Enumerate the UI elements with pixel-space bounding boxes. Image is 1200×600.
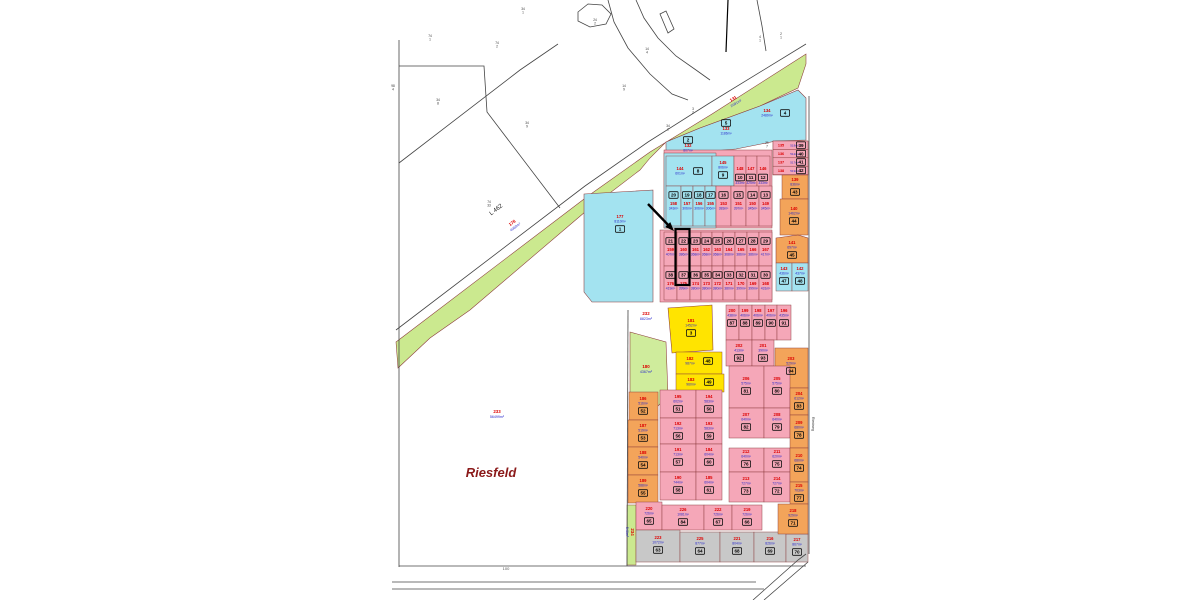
parcel-number: 147 <box>748 166 756 171</box>
lot-number: 63 <box>655 548 661 553</box>
lot-number: 3 <box>690 331 693 336</box>
parcel-number: 182 <box>687 356 695 361</box>
parcel-area: 640m² <box>772 418 782 422</box>
parcel-number: 169 <box>750 281 758 286</box>
parcel-number: 187 <box>640 423 648 428</box>
parcel-number: 156 <box>696 201 704 206</box>
parcel-area: 380m² <box>691 287 701 291</box>
parcel-area: 583m² <box>704 427 714 431</box>
parcel-area: 680m² <box>794 459 804 463</box>
parcel-number: 214 <box>774 476 782 481</box>
lot-number: 45 <box>789 253 795 258</box>
parcel-area: 1452m² <box>685 324 697 328</box>
parcel-number: 209 <box>796 420 804 425</box>
cadastral-label: 217 <box>765 141 769 148</box>
parcel-area: 540m² <box>625 527 629 538</box>
boundary-line <box>399 66 560 208</box>
lot-number: 50 <box>706 407 712 412</box>
lot-number: 69 <box>767 549 773 554</box>
lot-number: 35 <box>704 273 710 278</box>
parcel-number: 139 <box>792 177 800 182</box>
parcel-number: 201 <box>760 343 768 348</box>
parcel-area: 1081m² <box>677 513 689 517</box>
parcel-number: 176 <box>667 281 675 286</box>
parcel-area: 368m² <box>702 253 712 257</box>
parcel-area: 640m² <box>741 418 751 422</box>
cadastral-label: 348 <box>436 98 440 105</box>
lot-number: 13 <box>763 193 769 198</box>
street-name-label: Riedweg <box>811 417 815 431</box>
lot-number: 4 <box>784 111 787 116</box>
lot-number: 60 <box>706 460 712 465</box>
lot-number: 77 <box>796 496 802 501</box>
parcel-number: 137 <box>778 160 784 164</box>
parcel-number: 144 <box>677 166 685 171</box>
parcel-number: 160 <box>680 247 688 252</box>
parcel-number: 132 <box>685 143 693 148</box>
lot-number: 48 <box>797 279 803 284</box>
parcel-area: 519m² <box>638 429 648 433</box>
boundary-line <box>764 562 808 600</box>
lot-number: 67 <box>715 520 721 525</box>
lot-number: 87 <box>729 321 735 326</box>
lot-number: 55 <box>640 491 646 496</box>
parcel-area: 703m² <box>794 489 804 493</box>
parcel-number: 164 <box>726 247 734 252</box>
parcel-area: 726m² <box>713 513 723 517</box>
parcel-number: 195 <box>675 394 683 399</box>
lot-number: 28 <box>750 239 756 244</box>
lot-number: 21 <box>668 239 674 244</box>
parcel <box>676 374 724 392</box>
parcel-number: 153 <box>720 201 728 206</box>
parcel-area: 306m² <box>706 207 716 211</box>
parcel-number: 190 <box>675 475 683 480</box>
lot-number: 56 <box>675 434 681 439</box>
lot-number: 29 <box>763 239 769 244</box>
map-canvas: 1778110m²1144601m²8145806m²914810333m²14… <box>0 0 1200 600</box>
parcel <box>584 190 653 302</box>
lot-number: 64 <box>697 549 703 554</box>
parcel-area: 368m² <box>724 253 734 257</box>
lot-number: 42 <box>798 168 804 173</box>
parcel-area: 390m² <box>758 349 768 353</box>
lot-number: 78 <box>796 433 802 438</box>
cadastral-label: 7433 <box>487 200 491 207</box>
cadastral-label: 349 <box>525 121 529 128</box>
parcel-area: 306m² <box>694 207 704 211</box>
cadastral-label: 342 <box>666 124 670 131</box>
road-name-label: L 462 <box>489 203 505 217</box>
parcel <box>668 305 713 353</box>
lot-number: 84 <box>680 520 686 525</box>
lot-number: 12 <box>760 175 766 180</box>
lot-number: 37 <box>681 273 687 278</box>
parcel-number: 181 <box>688 318 696 323</box>
parcel-number: 162 <box>703 247 711 252</box>
lot-number: 52 <box>640 409 646 414</box>
lot-number: 57 <box>675 460 681 465</box>
parcel-area: 380m² <box>713 287 723 291</box>
parcel <box>666 156 712 186</box>
parcel-number: 180 <box>642 364 650 369</box>
lot-number: 90 <box>768 321 774 326</box>
parcel-number: 134 <box>764 108 772 113</box>
cadastral-label: 742 <box>495 41 499 48</box>
parcel-area: 333m² <box>758 181 768 185</box>
parcel-area: 399m² <box>748 287 758 291</box>
lot-number: 9 <box>722 173 725 178</box>
parcel-area: 697m² <box>787 246 797 250</box>
parcel-number: 191 <box>675 447 683 452</box>
cadastral-label: 32 <box>692 107 694 114</box>
parcel-area: 413m² <box>734 349 744 353</box>
lot-number: 44 <box>791 219 797 224</box>
parcel-area: 399m² <box>679 287 689 291</box>
parcel-area: 386m² <box>736 253 746 257</box>
lot-number: 11 <box>749 175 754 180</box>
parcel-area: 588m² <box>638 484 648 488</box>
parcel-area: 583m² <box>704 400 714 404</box>
lot-number: 15 <box>736 193 742 198</box>
parcel-number: 215 <box>796 483 804 488</box>
lot-number: 25 <box>715 239 721 244</box>
parcel-area: 713m² <box>673 453 683 457</box>
lot-number: 94 <box>788 369 794 374</box>
lot-number: 5 <box>725 121 728 126</box>
lot-number: 34 <box>715 273 721 278</box>
parcel-area: 640m² <box>741 455 751 459</box>
parcel <box>729 366 764 408</box>
street-label-group: Riedweg <box>811 417 815 431</box>
parcel-number: 170 <box>738 281 746 286</box>
boundary-line <box>757 0 766 51</box>
parcel-area: 368m² <box>691 253 701 257</box>
place-name-label: Riesfeld <box>466 465 518 480</box>
parcel-number: 185 <box>706 475 714 480</box>
parcel-number: 171 <box>726 281 734 286</box>
parcel-number: 210 <box>796 453 804 458</box>
parcel-number: 145 <box>720 160 728 165</box>
lot-number: 38 <box>668 273 674 278</box>
lot-number: 92 <box>736 356 742 361</box>
parcel-number: 133 <box>723 126 731 131</box>
parcel <box>780 199 808 235</box>
lot-number: 80 <box>774 389 780 394</box>
parcel-area: 386m² <box>679 253 689 257</box>
parcel-area: 417m² <box>761 253 771 257</box>
parcel-number: 234 <box>630 528 635 536</box>
lot-number: 26 <box>726 239 732 244</box>
lot-number: 89 <box>755 321 761 326</box>
lot-number: 19 <box>684 193 690 198</box>
lot-number: 14 <box>750 193 756 198</box>
boundary-line <box>399 44 558 163</box>
parcel-number: 135 <box>778 144 784 148</box>
parcel-number: 196 <box>781 308 789 313</box>
parcel-area: 806m² <box>718 166 728 170</box>
parcel-area: 604m² <box>704 453 714 457</box>
parcel-number: 159 <box>667 247 675 252</box>
lot-number: 24 <box>704 239 710 244</box>
parcel-area: 306m² <box>682 207 692 211</box>
rotated-label-group: 1784060m² <box>506 217 522 233</box>
lot-number: 16 <box>721 193 727 198</box>
parcel-area: 960m² <box>686 383 696 387</box>
parcel-number: 226 <box>680 507 688 512</box>
parcel-area: 435m² <box>779 314 789 318</box>
lot-number: 47 <box>781 279 787 284</box>
parcel-number: 149 <box>762 201 770 206</box>
cadastral-label: 242 <box>593 18 597 25</box>
parcel-area: 680m² <box>794 426 804 430</box>
lot-number: 18 <box>696 193 702 198</box>
parcel-area: 727m² <box>772 482 782 486</box>
cadastral-label: 41 <box>759 35 761 42</box>
parcel-area: 604m² <box>704 481 714 485</box>
parcel-number: 161 <box>692 247 700 252</box>
parcel-area: 325m² <box>746 181 756 185</box>
parcel-area: 826m² <box>765 542 775 546</box>
parcel-number: 177 <box>617 214 625 219</box>
parcel-area: 516m² <box>638 402 648 406</box>
parcel-number: 168 <box>762 281 770 286</box>
parcel-area: 929m² <box>788 514 798 518</box>
boundary-line <box>636 0 710 80</box>
cadastral-label: 21 <box>780 32 782 39</box>
lot-number: 71 <box>790 521 796 526</box>
lot-number: 73 <box>743 489 749 494</box>
lot-number: 10 <box>737 175 743 180</box>
parcel-area: 877m² <box>695 542 705 546</box>
lot-number: 68 <box>734 549 740 554</box>
lot-number: 91 <box>781 321 787 326</box>
parcel-number: 192 <box>675 421 683 426</box>
parcel-area: 726m² <box>644 512 654 516</box>
lot-number: 70 <box>794 550 800 555</box>
parcel-number: 194 <box>706 394 714 399</box>
parcel-number: 165 <box>738 247 746 252</box>
lot-number: 61 <box>706 488 712 493</box>
parcel-number: 184 <box>706 447 714 452</box>
parcel-number: 172 <box>714 281 722 286</box>
parcel-area: 1072m² <box>652 541 664 545</box>
parcel-number: 151 <box>735 201 743 206</box>
parcel-area: 383m² <box>719 207 729 211</box>
parcel-area: 397m² <box>734 207 744 211</box>
lot-number: 66 <box>744 520 750 525</box>
parcel-area: 620m² <box>772 455 782 459</box>
parcel-number: 208 <box>774 412 782 417</box>
parcel-area: 406m² <box>740 314 750 318</box>
lot-number: 40 <box>798 151 804 156</box>
parcel-area: 386m² <box>748 253 758 257</box>
parcel-area: 406m² <box>766 314 776 318</box>
lot-number: 58 <box>675 488 681 493</box>
parcel-number: 212 <box>743 449 751 454</box>
parcel-area: 8823m² <box>640 317 653 321</box>
north-arrow-icon <box>726 0 728 52</box>
parcel-area: 343m² <box>669 207 679 211</box>
parcel-number: 211 <box>774 449 781 454</box>
parcel-number: 188 <box>640 450 648 455</box>
parcel-number: 203 <box>788 356 796 361</box>
lot-number: 32 <box>738 273 744 278</box>
lot-number: 88 <box>742 321 748 326</box>
parcel-number: 155 <box>707 201 715 206</box>
parcel-number: 138 <box>778 169 784 173</box>
parcel-number: 205 <box>774 376 782 381</box>
parcel-area: 601m² <box>675 172 685 176</box>
parcel-area: 368m² <box>713 253 723 257</box>
lot-number: 93 <box>760 356 766 361</box>
parcel-area: 345m² <box>748 207 758 211</box>
cadastral-label: 341 <box>521 7 525 14</box>
boundary-line <box>660 11 674 33</box>
parcel-number: 142 <box>797 266 805 271</box>
parcel-area: 744m² <box>673 481 683 485</box>
parcel-number: 136 <box>778 152 784 156</box>
parcel-number: 174 <box>692 281 700 286</box>
parcel-area: 436m² <box>779 272 789 276</box>
parcel-number: 204 <box>796 391 804 396</box>
lot-number: 33 <box>726 273 732 278</box>
parcel-number: 200 <box>729 308 737 313</box>
parcel-number: 219 <box>744 507 752 512</box>
parcel-area: 602m² <box>673 400 683 404</box>
parcel-number: 158 <box>670 201 678 206</box>
parcel-number: 198 <box>755 308 763 313</box>
parcel-number: 140 <box>791 206 799 211</box>
road-label-group: L 462 <box>489 203 505 217</box>
lot-number: 36 <box>693 273 699 278</box>
parcel-area: 431m² <box>761 287 771 291</box>
parcel-number: 193 <box>706 421 714 426</box>
cadastral-label: 741 <box>428 34 432 41</box>
parcel-area: 438m² <box>727 314 737 318</box>
parcel-area: 836m² <box>790 183 800 187</box>
parcel-number: 141 <box>789 240 797 245</box>
parcel-number: 213 <box>743 476 751 481</box>
parcel-area: 540m² <box>638 456 648 460</box>
lot-number: 81 <box>743 389 749 394</box>
parcel-number: 233 <box>493 409 501 414</box>
parcel-number: 148 <box>737 166 745 171</box>
parcel-number: 225 <box>697 536 705 541</box>
scale-label: 100 <box>503 566 510 571</box>
lot-number: 39 <box>798 143 804 148</box>
lot-number: 17 <box>708 193 714 198</box>
lot-number: 72 <box>774 489 780 494</box>
parcel-area: 380m² <box>702 287 712 291</box>
lot-number: 54 <box>640 463 646 468</box>
parcel-number: 216 <box>767 536 775 541</box>
lot-number: 41 <box>798 160 804 165</box>
parcel-area: 4367m² <box>640 370 653 374</box>
parcel-number: 222 <box>715 507 723 512</box>
lot-number: 49 <box>706 380 712 385</box>
parcel-number: 217 <box>794 537 802 542</box>
parcel-area: 1462m² <box>788 212 800 216</box>
parcel-number: 220 <box>646 506 654 511</box>
parcel-area: 406m² <box>753 314 763 318</box>
lot-number: 22 <box>681 239 687 244</box>
lot-number: 31 <box>750 273 756 278</box>
parcel-area: 56499m² <box>490 415 505 419</box>
parcel-number: 166 <box>750 247 758 252</box>
parcel-area: 380m² <box>724 287 734 291</box>
parcel-number: 199 <box>742 308 750 313</box>
parcel-number: 150 <box>749 201 757 206</box>
parcel-area: 807m² <box>683 149 693 153</box>
parcel-number: 157 <box>684 201 692 206</box>
map-page: 1778110m²1144601m²8145806m²914810333m²14… <box>0 0 1200 600</box>
parcel-area: 575m² <box>772 382 782 386</box>
parcel-area: 987m² <box>685 362 695 366</box>
lot-number: 43 <box>792 190 798 195</box>
lot-number: 75 <box>774 462 780 467</box>
lot-number: 23 <box>693 239 699 244</box>
parcel-area: 419m² <box>666 287 676 291</box>
parcel-area: 333m² <box>735 181 745 185</box>
parcel-number: 186 <box>640 396 648 401</box>
cadastral-label: 984 <box>391 84 395 91</box>
lot-number: 65 <box>646 519 652 524</box>
parcel-area: 437m² <box>795 272 805 276</box>
parcel-number: 221 <box>734 536 742 541</box>
parcel-number: 167 <box>762 247 770 252</box>
cadastral-label: 149 <box>622 84 626 91</box>
parcel-number: 197 <box>768 308 776 313</box>
parcel-number: 146 <box>760 166 768 171</box>
parcel-number: 163 <box>714 247 722 252</box>
lot-number: 8 <box>697 169 700 174</box>
lot-number: 51 <box>675 407 681 412</box>
parcel-area: 575m² <box>741 382 751 386</box>
parcel-area: 727m² <box>741 482 751 486</box>
lot-number: 30 <box>763 273 769 278</box>
parcel-number: 183 <box>688 377 696 382</box>
parcel-area: 713m² <box>673 427 683 431</box>
lot-number: 1 <box>619 227 622 232</box>
lot-number: 79 <box>774 425 780 430</box>
lot-number: 2 <box>687 138 690 143</box>
lot-number: 59 <box>706 434 712 439</box>
parcel-number: 202 <box>736 343 744 348</box>
parcel-area: 8110m² <box>614 220 626 224</box>
parcel-number: 232 <box>642 311 650 316</box>
lot-number: 76 <box>743 462 749 467</box>
parcel-number: 143 <box>781 266 789 271</box>
parcel-area: 867m² <box>792 543 802 547</box>
parcel-area: 529m² <box>786 362 796 366</box>
lot-number: 74 <box>796 466 802 471</box>
parcel-number: 218 <box>790 508 798 513</box>
parcel-number: 206 <box>743 376 751 381</box>
parcel-area: 804m² <box>732 542 742 546</box>
parcel-number: 189 <box>640 478 648 483</box>
parcel-area: 345m² <box>761 207 771 211</box>
lot-number: 48 <box>705 359 711 364</box>
parcel-area: 399m² <box>736 287 746 291</box>
parcel-area: 1186m² <box>720 132 732 136</box>
lot-number: 83 <box>796 404 802 409</box>
cadastral-label: 144 <box>645 47 649 54</box>
lot-number: 82 <box>743 425 749 430</box>
parcel-area: 2489m² <box>761 114 773 118</box>
lot-number: 20 <box>671 193 677 198</box>
parcel-area: 612m² <box>794 397 804 401</box>
